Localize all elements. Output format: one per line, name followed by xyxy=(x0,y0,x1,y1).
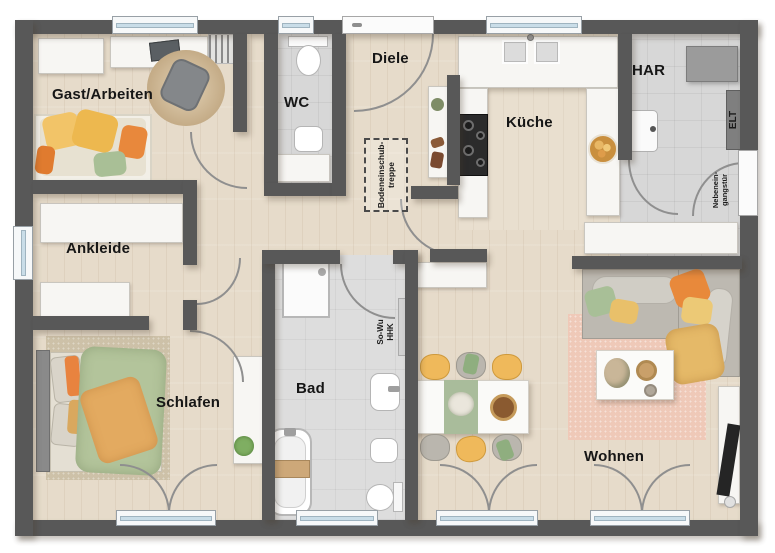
vase-1 xyxy=(636,360,657,381)
wall-diele-kueche xyxy=(447,75,460,185)
attic-stairs-line2: treppe xyxy=(386,162,396,188)
window-wc-glass xyxy=(282,23,310,28)
bath-caddy xyxy=(272,460,310,478)
bad-washbasin xyxy=(370,373,400,411)
side-door-line2: gangstür xyxy=(720,174,729,206)
chair-yellow-1 xyxy=(420,354,450,380)
bath-faucet xyxy=(284,428,296,436)
wall-ankleide-schlafen xyxy=(33,316,149,330)
heating-line1: So-Wu xyxy=(376,319,386,344)
kitchen-faucet xyxy=(527,34,534,41)
heating-line2: HHK xyxy=(386,323,396,340)
bad-toilet-bowl xyxy=(366,484,394,511)
burner-1 xyxy=(463,120,474,131)
heating-label: So-Wu HHK xyxy=(368,304,404,360)
wall-gast-ankleide xyxy=(33,180,183,194)
bidet xyxy=(370,438,398,463)
table-bowl xyxy=(490,394,517,421)
wall-wc-right xyxy=(332,34,346,196)
label-wc: WC xyxy=(284,94,309,111)
label-schlafen: Schlafen xyxy=(156,394,220,411)
front-door-handle xyxy=(352,23,362,27)
label-wohnen: Wohnen xyxy=(584,448,644,465)
speaker xyxy=(724,496,736,508)
wall-bad-right xyxy=(405,250,418,520)
har-unit xyxy=(686,46,738,82)
wall-kueche-har xyxy=(618,34,632,160)
chair-yellow-2 xyxy=(492,354,522,380)
label-bad: Bad xyxy=(296,380,325,397)
chair-gray-2 xyxy=(420,434,450,461)
sofa-pillow-yellow-2 xyxy=(680,296,713,326)
window-ankleide xyxy=(13,226,33,280)
schlafen-terrace-door xyxy=(116,510,216,526)
window-gast-glass xyxy=(116,23,194,28)
shower-drain xyxy=(318,268,326,276)
dining-sideboard xyxy=(411,262,487,288)
window-kueche xyxy=(486,16,582,34)
sofa-pillow-yellow xyxy=(608,298,640,326)
passage-sideboard xyxy=(584,222,738,254)
toilet-bowl xyxy=(296,45,321,76)
bad-toilet-tank xyxy=(393,482,403,512)
wall-ankleide-hall-upper xyxy=(183,180,197,265)
wohnen-terrace-door-1 xyxy=(436,510,538,526)
bed-headboard xyxy=(36,350,50,472)
pillow-green xyxy=(93,150,127,177)
wall-gast-right xyxy=(233,34,247,132)
attic-stairs-label: Bodeneinschub- treppe xyxy=(364,135,408,215)
wall-wc-left xyxy=(264,34,278,184)
wohnen-terrace-glass-1 xyxy=(440,516,534,521)
schlafen-terrace-glass xyxy=(120,516,212,521)
burner-4 xyxy=(476,158,485,167)
wohnen-terrace-glass-2 xyxy=(594,516,686,521)
label-diele: Diele xyxy=(372,50,409,67)
fruit-bowl xyxy=(588,134,618,164)
wall-schlafen-bad xyxy=(262,263,275,520)
table-plant xyxy=(604,358,630,388)
wall-dining-stub xyxy=(430,249,487,262)
window-wc xyxy=(278,16,314,34)
wall-bad-top-left xyxy=(262,250,340,264)
label-kueche: Küche xyxy=(506,114,553,131)
wohnen-terrace-door-2 xyxy=(590,510,690,526)
label-ankleide: Ankleide xyxy=(66,240,130,257)
window-bad-glass xyxy=(300,516,374,521)
window-kueche-glass xyxy=(490,23,578,28)
wall-ankleide-hall-lower xyxy=(183,300,197,330)
attic-stairs-line1: Bodeneinschub- xyxy=(376,142,386,209)
kitchen-sink-basin xyxy=(502,40,528,64)
wall-kueche-stub xyxy=(411,186,458,199)
burner-2 xyxy=(476,131,485,140)
kitchen-sink-basin-2 xyxy=(534,40,560,64)
elt-text: ELT xyxy=(728,111,740,129)
vase-2 xyxy=(644,384,657,397)
floor-plan: Bodeneinschub- treppe ELT xyxy=(0,0,775,553)
label-gast-arbeiten: Gast/Arbeiten xyxy=(52,86,153,103)
window-gast xyxy=(112,16,198,34)
elt-label: ELT xyxy=(714,98,754,142)
wall-wc-bottom xyxy=(264,183,332,196)
schlafen-plant xyxy=(234,436,254,456)
wall-passage-wohnen xyxy=(572,256,742,269)
wardrobe-top xyxy=(40,203,183,243)
side-door-line1: Nebenein- xyxy=(711,172,720,208)
gast-cabinet xyxy=(38,38,104,74)
burner-3 xyxy=(463,145,474,156)
table-flowers xyxy=(448,392,474,416)
washing-machine-dial xyxy=(650,126,656,132)
window-bad xyxy=(296,510,378,526)
side-door-label: Nebenein- gangstür xyxy=(698,164,742,216)
basin-faucet xyxy=(388,386,400,392)
label-har: HAR xyxy=(632,62,665,79)
wc-sink xyxy=(294,126,323,152)
window-ankleide-glass xyxy=(21,230,26,276)
hall-plant xyxy=(431,98,444,111)
